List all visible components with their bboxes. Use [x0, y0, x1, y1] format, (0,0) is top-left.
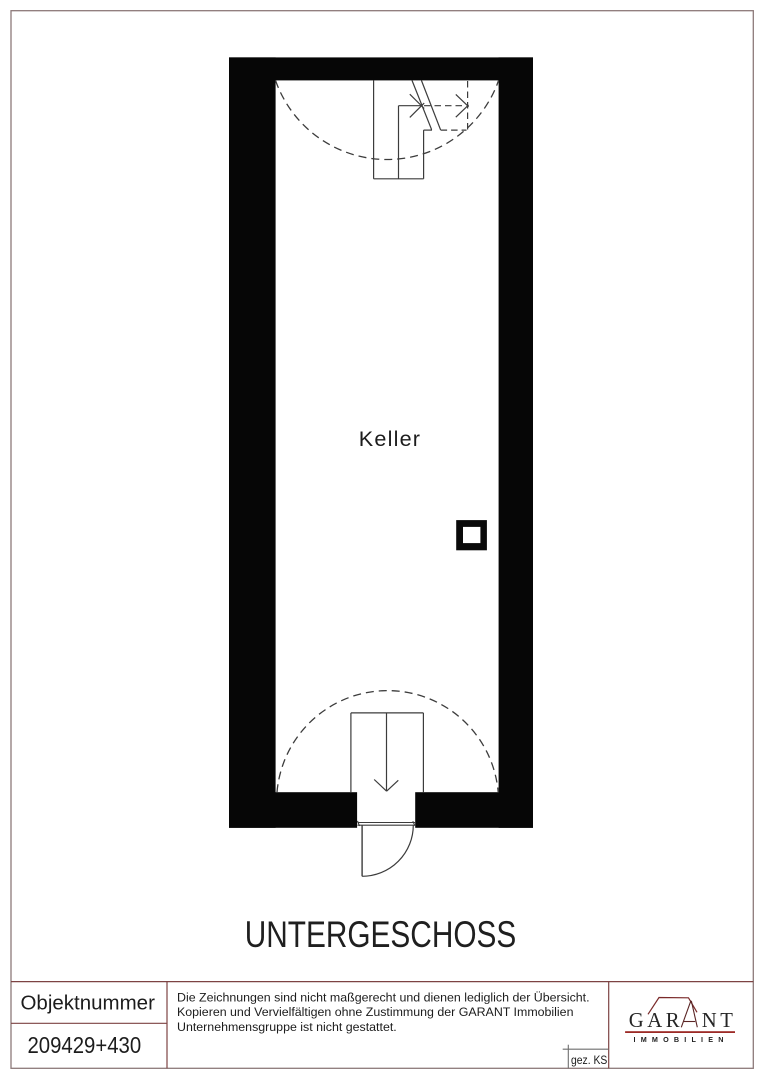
svg-text:UNTERGESCHOSS: UNTERGESCHOSS	[245, 914, 517, 956]
svg-text:GARANT: GARANT	[629, 1010, 737, 1032]
svg-text:gez. KS: gez. KS	[571, 1055, 607, 1068]
svg-text:Kopieren und Vervielfältigen o: Kopieren und Vervielfältigen ohne Zustim…	[177, 1005, 574, 1019]
svg-text:Keller: Keller	[359, 426, 421, 451]
svg-text:Objektnummer: Objektnummer	[20, 991, 155, 1014]
svg-text:209429+430: 209429+430	[27, 1032, 141, 1058]
svg-text:Die Zeichnungen sind nicht maß: Die Zeichnungen sind nicht maßgerecht un…	[177, 991, 590, 1005]
svg-text:Unternehmensgruppe ist nicht g: Unternehmensgruppe ist nicht gestattet.	[177, 1020, 397, 1034]
svg-text:IMMOBILIEN: IMMOBILIEN	[634, 1035, 729, 1044]
